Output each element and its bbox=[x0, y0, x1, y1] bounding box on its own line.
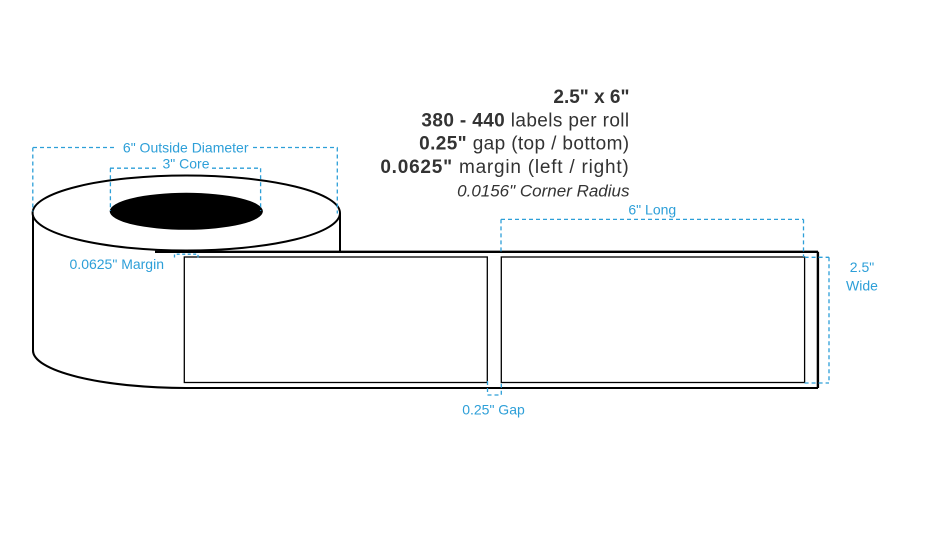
svg-text:0.25" Gap: 0.25" Gap bbox=[462, 402, 525, 418]
svg-text:0.0156" Corner Radius: 0.0156" Corner Radius bbox=[457, 181, 630, 200]
svg-text:0.25" gap (top / bottom): 0.25" gap (top / bottom) bbox=[419, 134, 629, 155]
svg-text:0.0625" margin (left / right): 0.0625" margin (left / right) bbox=[380, 157, 629, 178]
svg-text:380 - 440 labels per roll: 380 - 440 labels per roll bbox=[421, 110, 629, 131]
svg-text:2.5" x 6": 2.5" x 6" bbox=[553, 87, 629, 108]
svg-text:0.0625" Margin: 0.0625" Margin bbox=[70, 256, 164, 272]
svg-text:Wide: Wide bbox=[846, 278, 878, 294]
svg-text:6" Outside Diameter: 6" Outside Diameter bbox=[123, 140, 249, 156]
svg-text:2.5": 2.5" bbox=[850, 259, 874, 275]
svg-text:6" Long: 6" Long bbox=[628, 202, 676, 218]
svg-text:3" Core: 3" Core bbox=[163, 156, 210, 172]
